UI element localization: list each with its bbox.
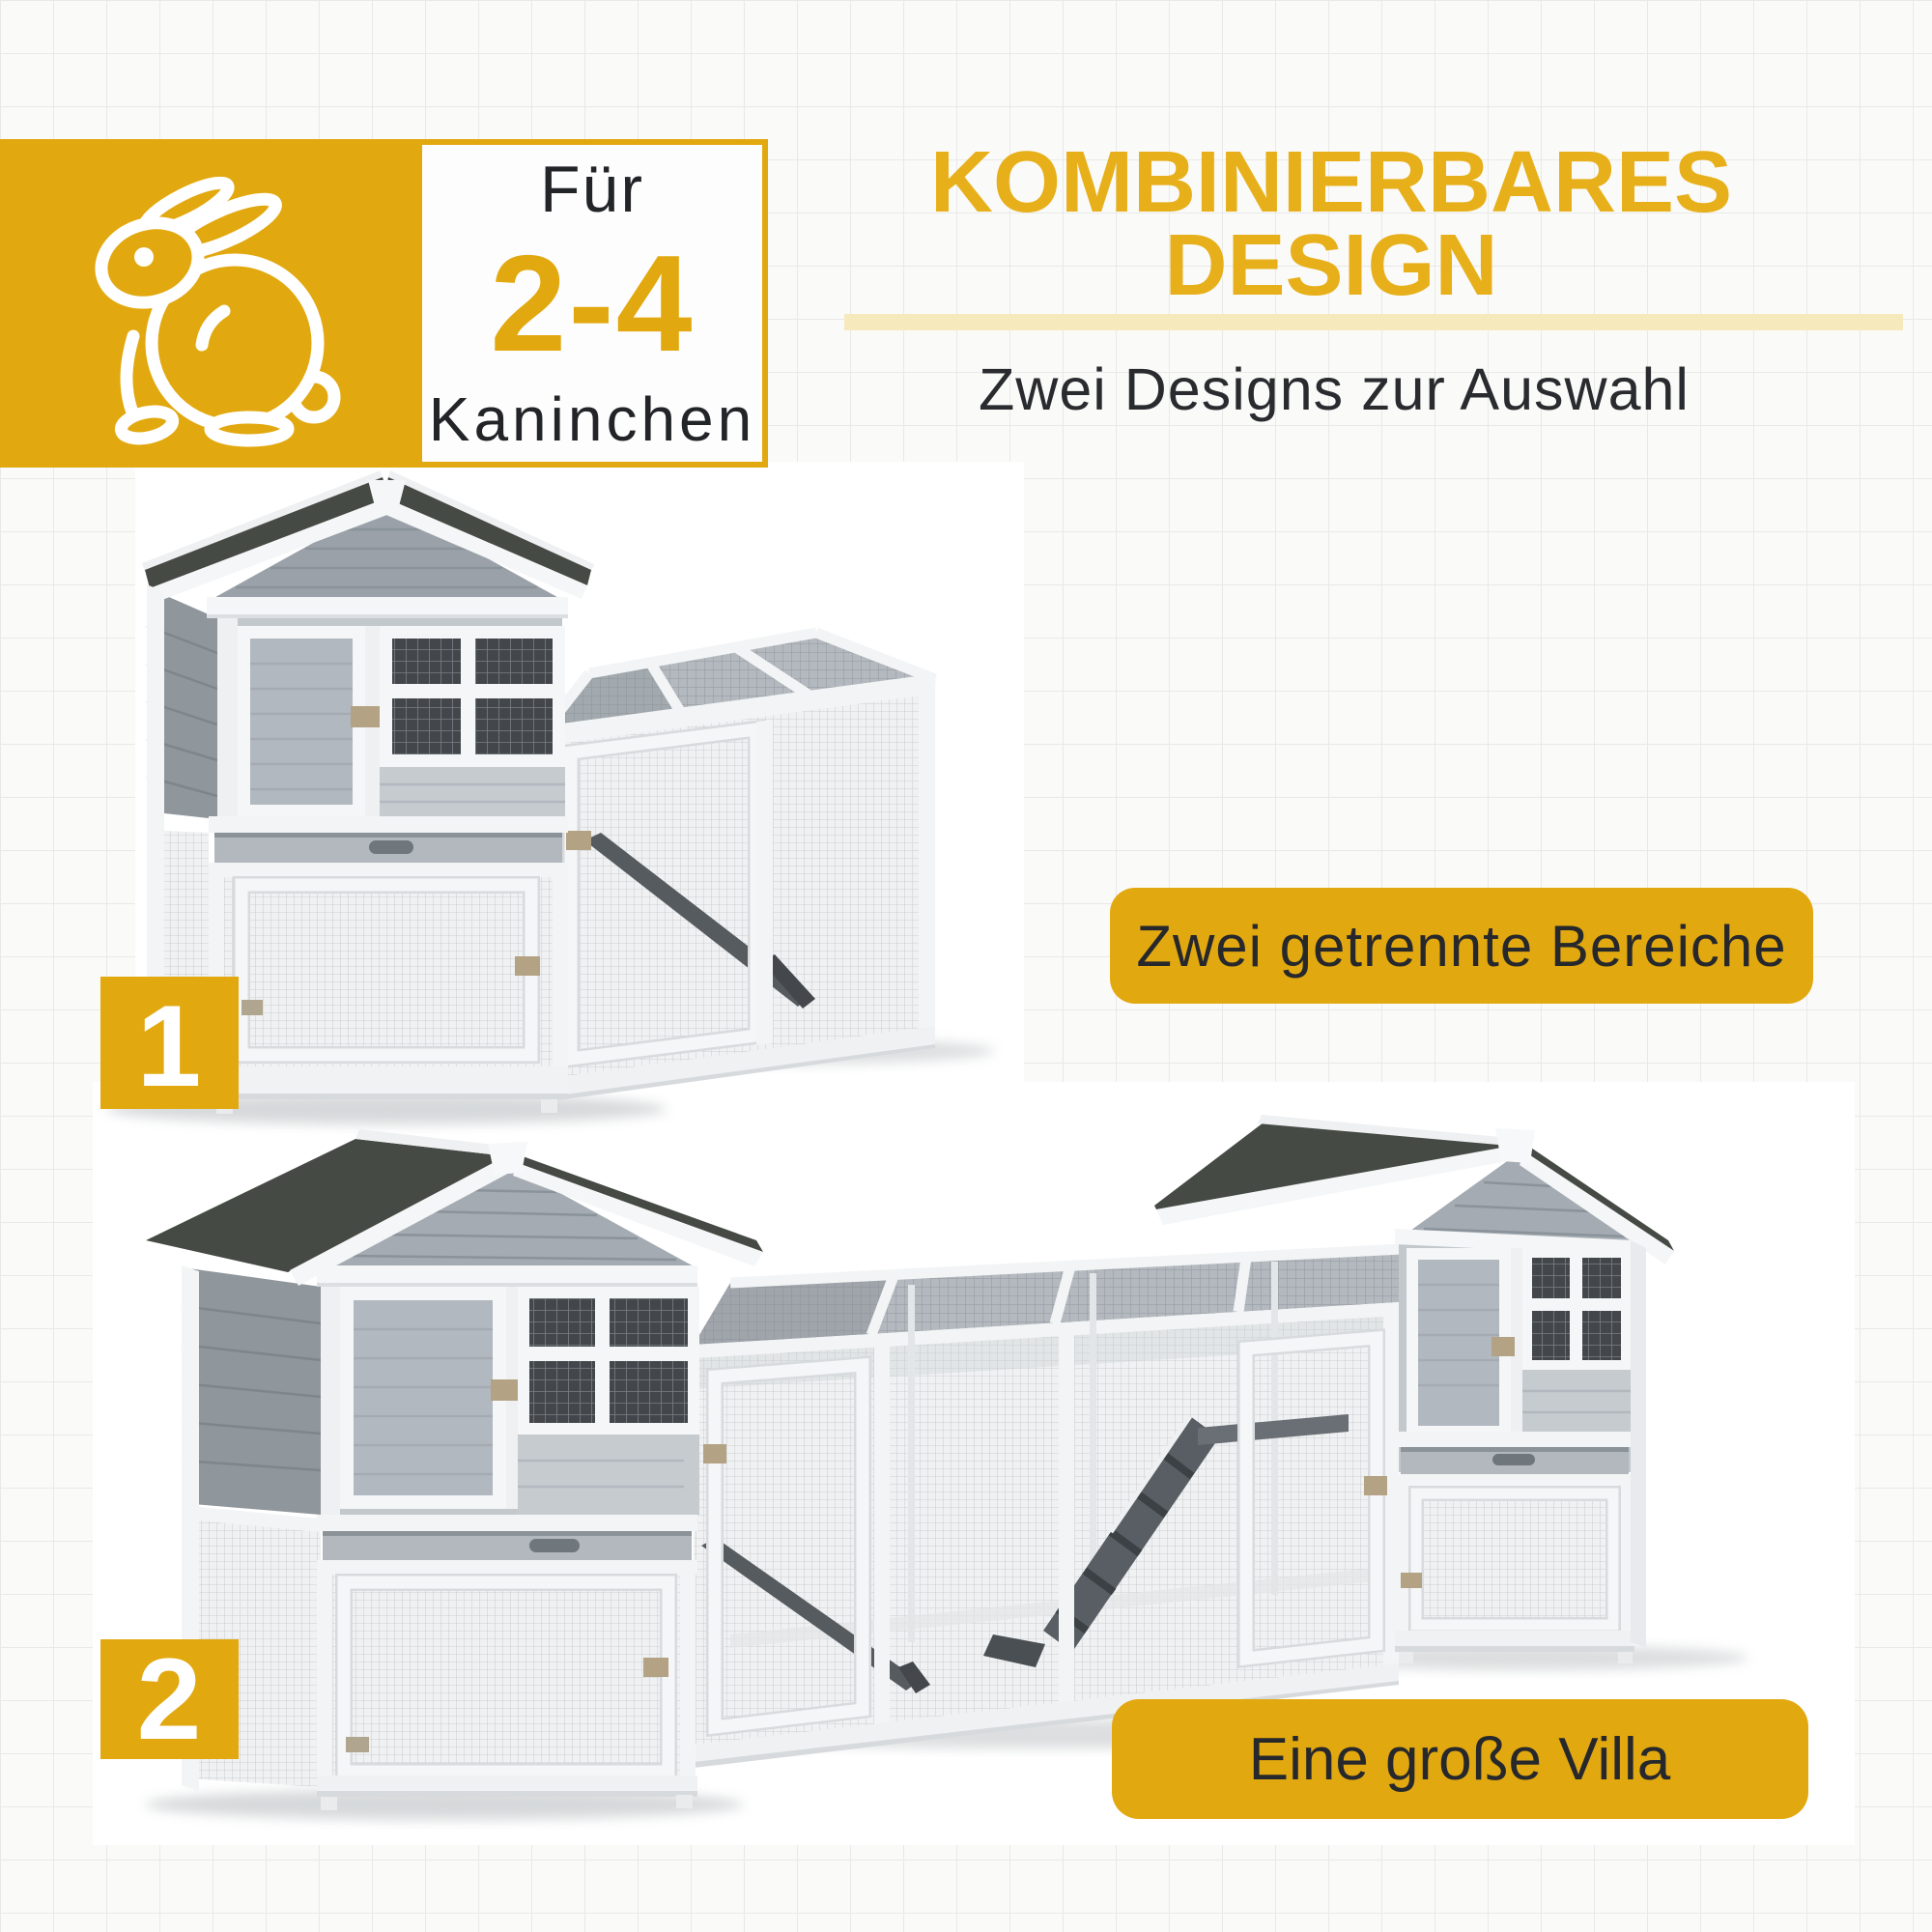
svg-text:Eine große Villa: Eine große Villa — [1249, 1726, 1671, 1793]
svg-text:2: 2 — [137, 1634, 202, 1764]
svg-text:Zwei getrennte Bereiche: Zwei getrennte Bereiche — [1136, 914, 1786, 979]
svg-text:Für: Für — [540, 153, 644, 226]
svg-text:DESIGN: DESIGN — [1164, 217, 1497, 314]
svg-text:KOMBINIERBARES: KOMBINIERBARES — [930, 134, 1732, 231]
svg-text:Zwei Designs zur Auswahl: Zwei Designs zur Auswahl — [979, 356, 1690, 422]
svg-text:1: 1 — [137, 981, 202, 1111]
svg-text:Kaninchen: Kaninchen — [429, 384, 755, 454]
svg-text:2-4: 2-4 — [490, 227, 694, 381]
